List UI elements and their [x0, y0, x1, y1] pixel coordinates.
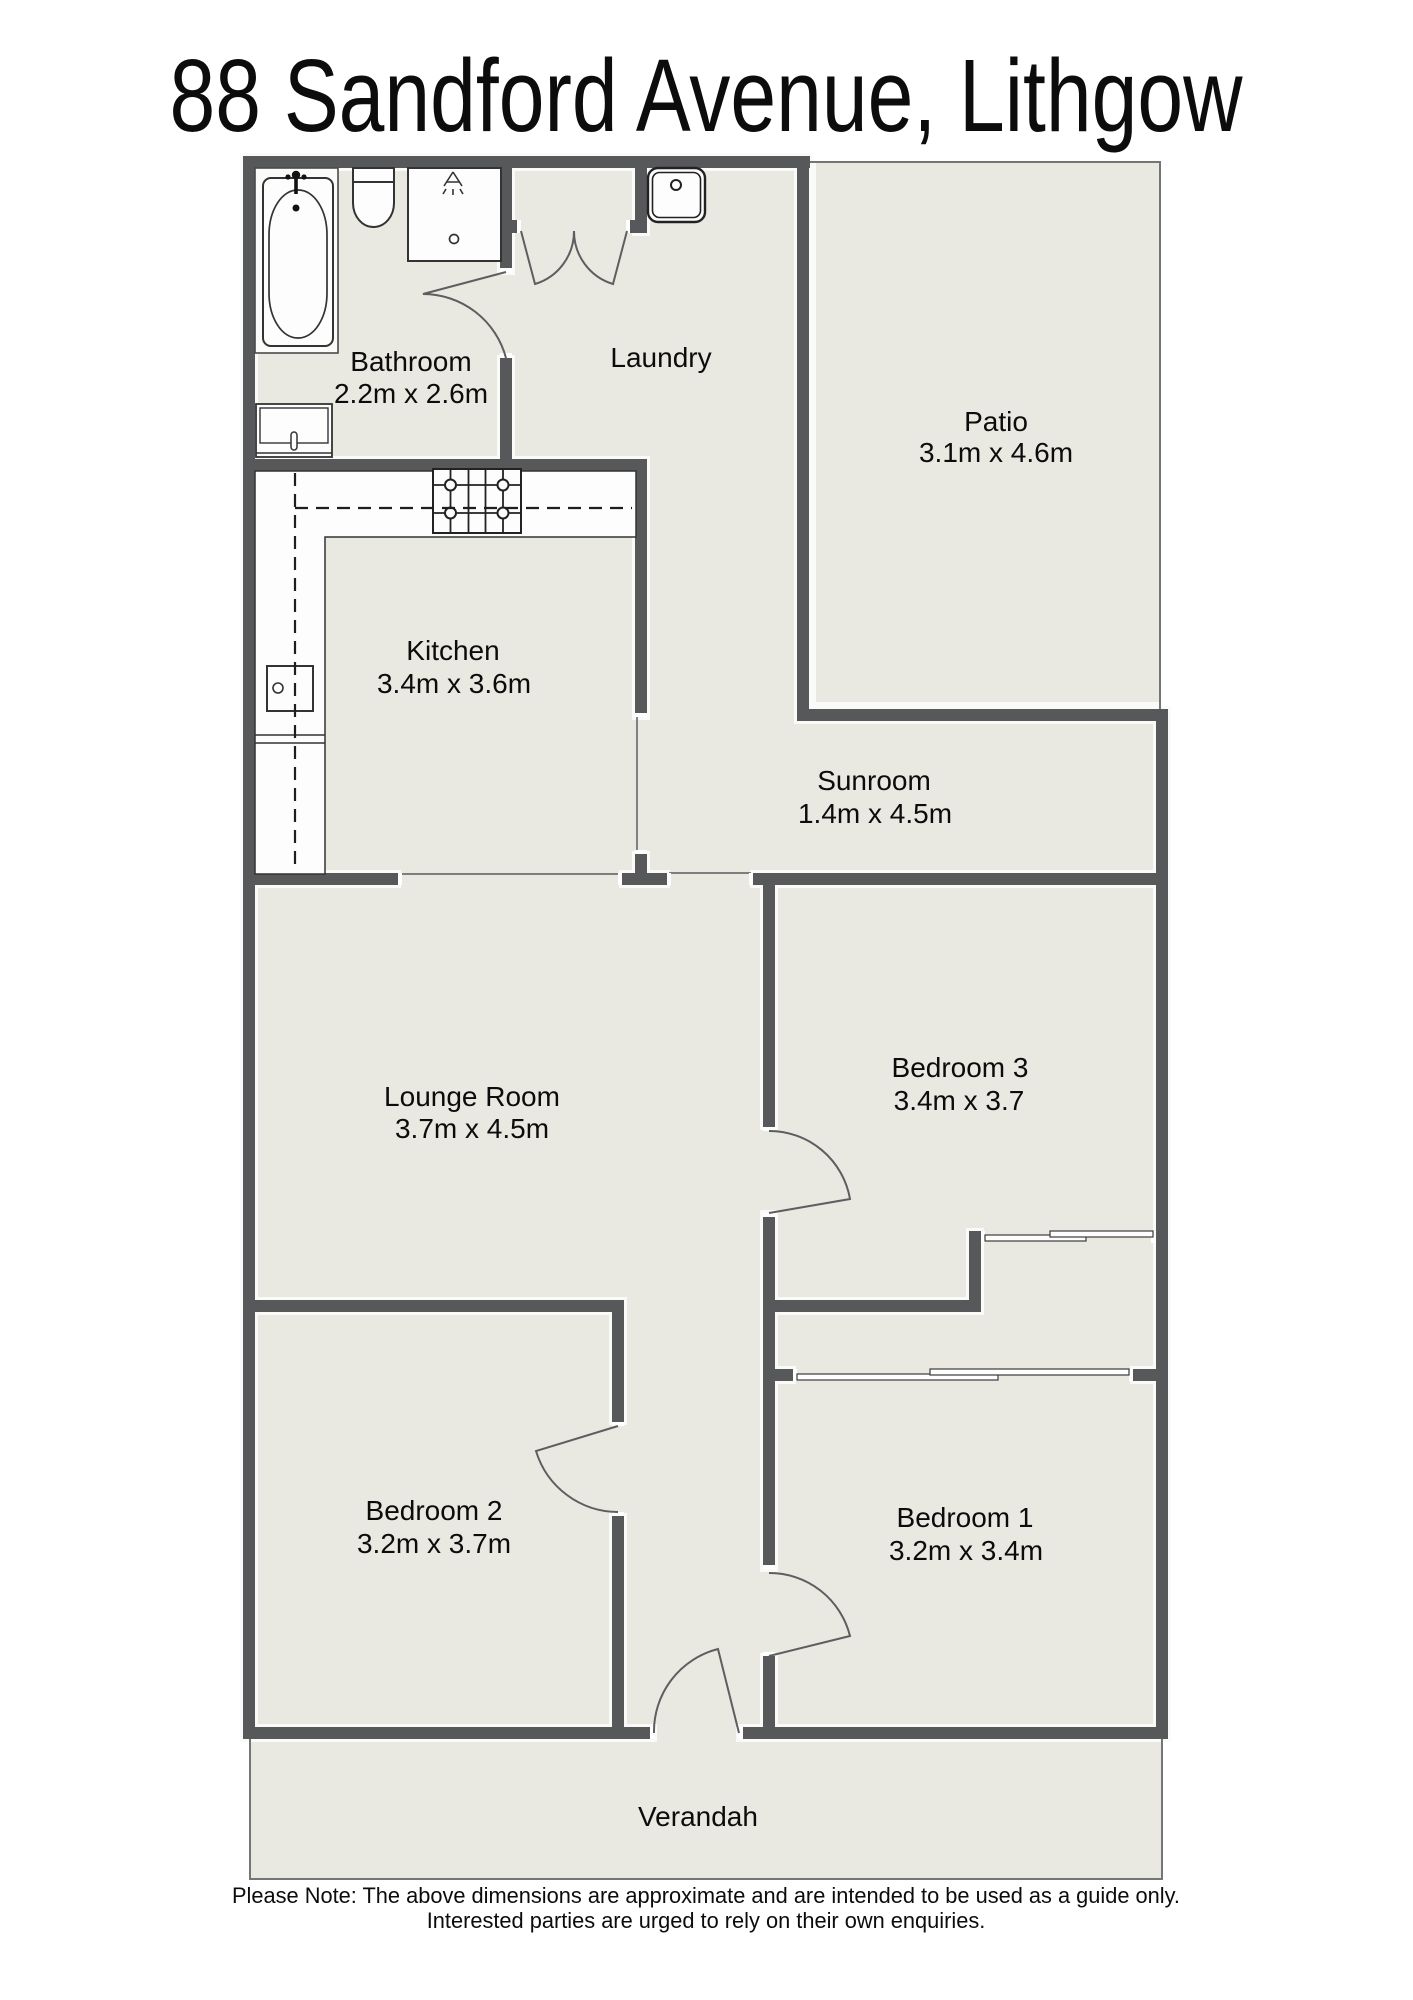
svg-text:Please Note: The above dimensi: Please Note: The above dimensions are ap… [232, 1883, 1180, 1908]
svg-text:3.4m x 3.7: 3.4m x 3.7 [894, 1085, 1025, 1116]
svg-text:3.4m x 3.6m: 3.4m x 3.6m [377, 668, 531, 699]
svg-text:Bathroom: Bathroom [350, 346, 471, 377]
svg-text:Verandah: Verandah [638, 1801, 758, 1832]
svg-text:3.2m x 3.7m: 3.2m x 3.7m [357, 1528, 511, 1559]
svg-text:1.4m x 4.5m: 1.4m x 4.5m [798, 798, 952, 829]
svg-text:Bedroom 1: Bedroom 1 [897, 1502, 1034, 1533]
svg-text:Bedroom 2: Bedroom 2 [366, 1495, 503, 1526]
svg-text:3.1m x 4.6m: 3.1m x 4.6m [919, 437, 1073, 468]
svg-text:Bedroom 3: Bedroom 3 [892, 1052, 1029, 1083]
svg-text:Patio: Patio [964, 406, 1028, 437]
svg-text:3.2m x 3.4m: 3.2m x 3.4m [889, 1535, 1043, 1566]
svg-text:Lounge Room: Lounge Room [384, 1081, 560, 1112]
svg-text:3.7m x 4.5m: 3.7m x 4.5m [395, 1113, 549, 1144]
svg-text:Kitchen: Kitchen [406, 635, 499, 666]
svg-text:Sunroom: Sunroom [817, 765, 931, 796]
svg-text:2.2m x 2.6m: 2.2m x 2.6m [334, 378, 488, 409]
svg-text:88 Sandford Avenue, Lithgow: 88 Sandford Avenue, Lithgow [170, 38, 1243, 153]
svg-text:Laundry: Laundry [610, 342, 711, 373]
svg-text:Interested parties are urged t: Interested parties are urged to rely on … [427, 1908, 986, 1933]
